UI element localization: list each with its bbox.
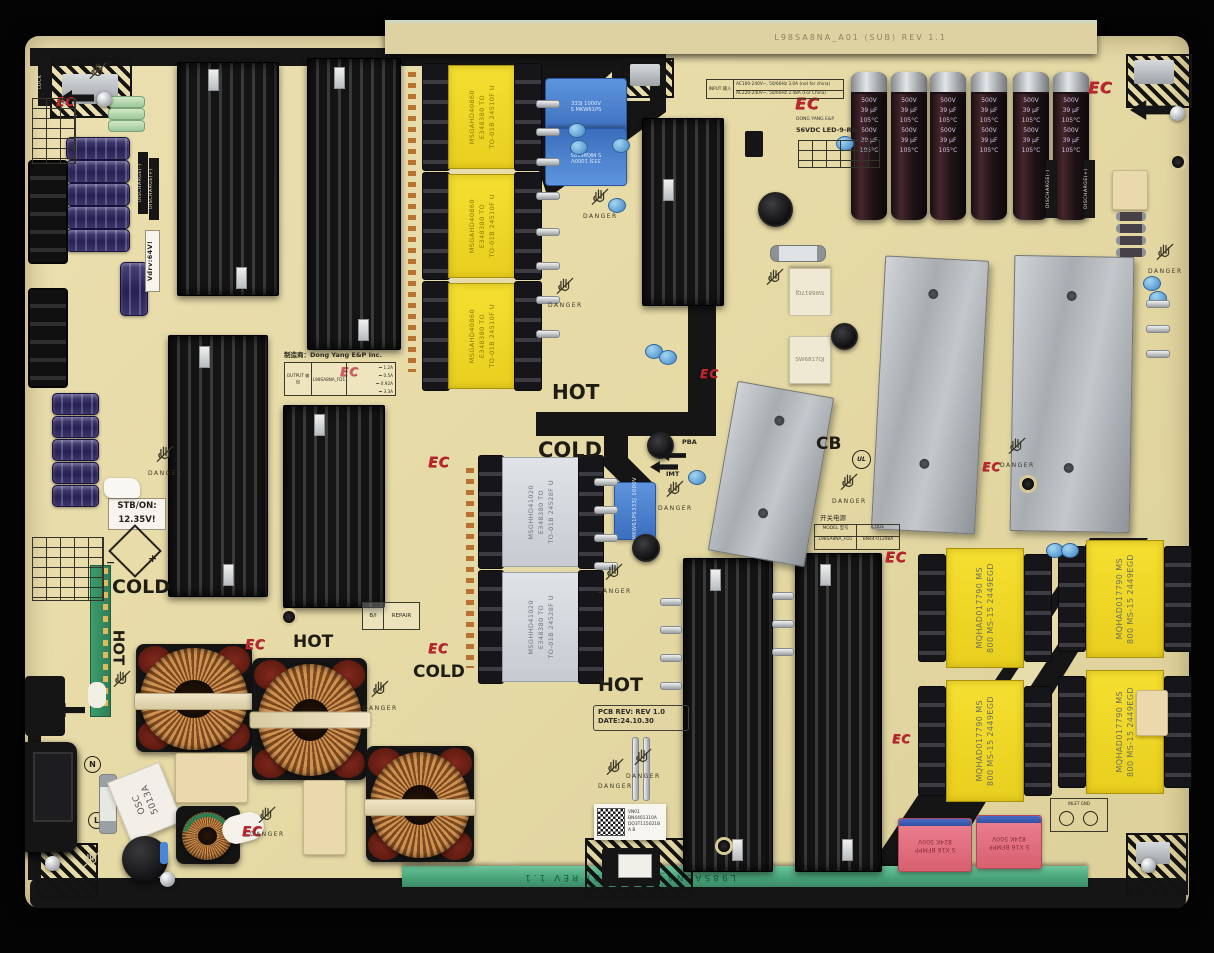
transformer-yellow: MSGAHD40860E348380 TOTO-01B 24510F U	[422, 172, 540, 278]
transformer-bobbin	[514, 63, 542, 171]
jumper-wire	[594, 506, 618, 514]
mounting-hole	[1022, 478, 1034, 490]
transformer-clamp	[1024, 554, 1052, 662]
discharge-label: DISCHARGE(+)	[149, 158, 159, 220]
input-lines-cell: AC100-240V~, 50/60Hz 3.0A (not for china…	[734, 80, 843, 98]
zone-label-hot: HOT	[552, 382, 599, 402]
film-capacitor-red: 824K 500VS X16 BFMPP	[898, 818, 972, 872]
danger-hand: DANGER	[1000, 435, 1035, 469]
transformer-bobbin	[478, 570, 504, 684]
heatsink-clip	[199, 346, 210, 368]
screw	[1170, 106, 1185, 121]
sw-module: SW6817QJ	[789, 336, 831, 384]
sw-module: SW6817QJ	[789, 268, 831, 316]
ec-logo: EC	[700, 368, 719, 380]
ec-logo: EC	[428, 643, 448, 656]
cb-mark: CB	[816, 436, 841, 453]
capacitor-navy	[66, 229, 130, 252]
heatsink-clip	[820, 564, 831, 586]
jumper-wire	[772, 592, 794, 600]
danger-hand: DANGER	[548, 275, 583, 309]
hand-icon	[112, 668, 132, 694]
capacitor-navy	[66, 183, 130, 206]
jumper-wire	[1146, 300, 1170, 308]
pba-label: PBA	[682, 438, 697, 446]
zone-label-hot: HOT	[293, 634, 333, 651]
to220-transistor	[745, 131, 763, 157]
resistor-green	[108, 96, 145, 108]
transformer-clamp	[1024, 686, 1052, 796]
heatsink-clip	[236, 267, 247, 289]
danger-hand	[112, 668, 132, 694]
film-capacitor-blue: 333J 1000VS MKW61PS	[614, 482, 656, 540]
capacitor-round	[632, 534, 660, 562]
toroid-saddle	[364, 799, 476, 816]
heatsink-clip	[334, 67, 345, 89]
type-cn-label: 开关电源	[820, 512, 846, 522]
hand-icon	[1155, 241, 1175, 267]
polarity-plus: +	[148, 552, 157, 565]
model-val: L98SA8NA_FD1	[815, 537, 857, 549]
disc-capacitor	[1143, 276, 1161, 291]
top-subboard-edge: L98SA8NA_A01 (SUB) REV 1.1	[385, 20, 1097, 54]
output-spec-table: OUTPUT 输出 L98SA8NA_FD1 ⎓ 1.2A⎓ 0.5A ⎓ 0.…	[284, 362, 396, 396]
transformer-pins	[466, 468, 474, 668]
glue-blob	[88, 682, 106, 708]
output-lines-cell: ⎓ 1.2A⎓ 0.5A ⎓ 0.92A⎓ 3.3A	[347, 363, 395, 395]
arrow-left-icon	[1130, 100, 1176, 120]
capacitor-navy	[120, 262, 148, 316]
diode	[1116, 224, 1146, 233]
repair-table: B/I REPAIR	[362, 602, 420, 630]
jumper-wire	[1146, 350, 1170, 358]
toroid-inductor	[140, 648, 248, 750]
jumper-wire	[536, 192, 560, 200]
model-key: MODEL 型号	[815, 525, 857, 537]
screw	[160, 872, 175, 887]
thermistor-lead	[160, 842, 168, 864]
heatsink-clip	[223, 564, 234, 586]
hand-icon	[765, 266, 785, 292]
discharge-label: DISCHARGE(-)	[1046, 160, 1057, 218]
toroid-inductor	[370, 752, 470, 858]
transformer-label: MSGHHD41020E348380 TOTO-01B 24528F U	[502, 457, 580, 567]
capacitor-500v: 500V39 μF105°C500V39 μF105°C	[891, 72, 927, 220]
zone-label-cold: COLD	[538, 440, 602, 461]
capacitor-round	[831, 323, 858, 350]
danger-hand: DANGER	[363, 678, 398, 712]
gnd-symbol	[1059, 811, 1074, 826]
vdrv-label: Vdrv:64V!	[145, 230, 160, 292]
jumper-wire	[536, 158, 560, 166]
transformer-label: MSGAHD40860E348380 TOTO-01B 24510F U	[448, 174, 516, 278]
pcb-rev-box: PCB REV: REV 1.0DATE:24.10.30	[593, 705, 689, 731]
transformer-label: MSGHHD41020E348380 TOTO-01B 24528F U	[502, 572, 580, 682]
heatsink-clip	[208, 69, 219, 91]
ul-mark: UL	[852, 450, 871, 469]
transformer-corner: MQHAD017790 MS800 MS-15 2449EGD	[1058, 540, 1190, 656]
transformer-gray: MSGHHD41020E348380 TOTO-01B 24528F U	[478, 455, 602, 567]
disc-capacitor	[612, 138, 630, 153]
hand-icon	[604, 561, 624, 587]
wire-connector	[28, 160, 68, 264]
transformer-corner: MQHAD017790 MS800 MS-15 2449EGD	[918, 548, 1050, 666]
transformer-clamp	[1164, 546, 1192, 652]
toroid-saddle	[250, 712, 372, 729]
jumper-wire	[660, 598, 682, 606]
hand-icon	[605, 756, 625, 782]
capacitor-top	[1013, 72, 1049, 94]
ec-logo: EC	[892, 733, 911, 745]
ec-logo: EC	[885, 551, 907, 565]
diode	[1116, 212, 1146, 221]
diode	[1116, 236, 1146, 245]
jumper-wire	[536, 262, 560, 270]
gnd-symbol	[1083, 811, 1098, 826]
qr-code	[597, 808, 625, 836]
imt-label: IMT	[666, 470, 679, 478]
inlet-n-label: N	[84, 756, 101, 773]
capacitor-navy	[66, 206, 130, 229]
jumper-wire	[772, 620, 794, 628]
jumper-wire	[594, 534, 618, 542]
capacitor-round	[758, 192, 793, 227]
capacitor-500v: 500V39 μF105°C500V39 μF105°C	[930, 72, 966, 220]
code-key: CODE	[857, 525, 899, 537]
maker-label: 制造商：Dong Yang E&P Inc.	[284, 349, 382, 359]
heatsink-black	[283, 405, 385, 608]
capacitor-top	[971, 72, 1007, 94]
hand-icon	[82, 848, 102, 874]
qr-sticker: VN01 BN4401310A DQ3T115021B A B	[594, 804, 666, 840]
discharge-label: DISCHARGE(+)	[1084, 160, 1095, 218]
screw	[1141, 858, 1156, 873]
heatsink-silver	[871, 255, 989, 534]
jumper-wire	[660, 626, 682, 634]
ac-inlet-socket	[33, 752, 73, 822]
transformer-corner: MQHAD017790 MS800 MS-15 2449EGD	[1058, 670, 1190, 792]
fusible-resistor	[770, 245, 826, 262]
silk-grid-table	[32, 98, 76, 164]
jumper-wire	[536, 128, 560, 136]
output-model-cell: L98SA8NA_FD1	[312, 363, 347, 395]
hand-icon	[665, 478, 685, 504]
model-code-plate: MODEL 型号 CODE L98SA8NA_FD1 BN44-01208A	[814, 524, 900, 550]
jumper-wire	[772, 648, 794, 656]
jumper-wire	[536, 100, 560, 108]
jumper-wire	[536, 228, 560, 236]
mounting-hole	[718, 840, 730, 852]
polarity-minus: −	[106, 556, 115, 569]
input-spec-table: INPUT 输入 AC100-240V~, 50/60Hz 3.0A (not …	[706, 79, 844, 99]
jumper-wire	[660, 654, 682, 662]
heatsink-clip	[710, 569, 721, 591]
disc-capacitor	[568, 123, 586, 138]
heatsink-black	[683, 558, 773, 872]
wire-connector	[28, 288, 68, 388]
heatsink-clip	[314, 414, 325, 436]
danger-hand: DANGER	[148, 443, 183, 477]
transformer-clamp	[1058, 546, 1086, 652]
transformer-bobbin	[478, 455, 504, 569]
ec-logo: EC	[245, 639, 265, 652]
service-switch-topright	[1134, 60, 1174, 84]
screw	[45, 856, 60, 871]
screw	[97, 92, 112, 107]
heatsink-clip	[732, 839, 743, 861]
pba-arrow	[660, 446, 686, 457]
disc-capacitor	[659, 350, 677, 365]
film-capacitor-beige	[1112, 170, 1148, 210]
hand-icon	[590, 186, 610, 212]
transformer-label: MQHAD017790 MS800 MS-15 2449EGD	[1086, 540, 1164, 658]
disc-capacitor	[570, 140, 588, 155]
connector-bottomcenter-insert	[618, 854, 652, 878]
transformer-bobbin	[422, 172, 450, 280]
zone-label-hot: HOT	[598, 676, 643, 695]
capacitor-navy	[52, 462, 99, 484]
service-switch-top	[630, 64, 660, 86]
film-capacitor-beige	[1136, 690, 1168, 736]
zone-label-cold: COLD	[413, 664, 465, 681]
heatsink-clip	[663, 179, 674, 201]
pcb-photo: L98SA8NA_A01 (SUB) REV 1.1 L98SA8NA_A01 …	[0, 0, 1214, 953]
danger-hand: DANGER	[598, 756, 633, 790]
ec-logo: EC	[982, 461, 1001, 473]
capacitor-navy	[52, 416, 99, 438]
hand-icon	[555, 275, 575, 301]
jumper-wire	[1146, 325, 1170, 333]
ec-logo: EC	[1088, 80, 1113, 96]
brand-logo-text: DONG YANG E&P	[796, 117, 834, 122]
mounting-hole	[1172, 156, 1184, 168]
heatsink-silver	[1010, 255, 1135, 533]
danger-hand	[765, 266, 785, 292]
sticker-torn	[104, 478, 140, 498]
resistor-green	[108, 120, 145, 132]
transformer-pins	[408, 72, 416, 372]
toroid-saddle	[134, 693, 254, 710]
heatsink-black	[795, 553, 882, 872]
transformer-clamp	[918, 686, 946, 796]
danger-hand	[88, 60, 108, 86]
wire-clamp	[25, 676, 65, 736]
hand-icon	[257, 804, 277, 830]
film-capacitor-beige	[175, 753, 248, 803]
transformer-label: MQHAD017790 MS800 MS-15 2449EGD	[946, 680, 1024, 802]
capacitor-top	[930, 72, 966, 94]
capacitor-500v: 500V39 μF105°C500V39 μF105°C	[1013, 72, 1049, 220]
silk-grid-table	[798, 140, 880, 168]
jumper-wire	[536, 330, 560, 338]
heatsink-black	[168, 335, 268, 597]
transformer-label: MSGAHD40860E348380 TOTO-01B 24510F U	[448, 283, 516, 389]
heatsink-clip	[842, 839, 853, 861]
zone-label-cold: COLD	[112, 578, 170, 597]
jumper-wire	[594, 478, 618, 486]
transformer-clamp	[1164, 676, 1192, 788]
film-capacitor-red: 824K 500VS X16 BFMPP	[976, 815, 1042, 869]
capacitor-top	[851, 72, 887, 94]
transformer-bobbin	[422, 281, 450, 391]
film-capacitor-beige	[303, 780, 346, 855]
subboard-edge-text: L98SA8NA_A01 (SUB) REV 1.1	[774, 33, 947, 42]
danger-hand: DANGER	[250, 804, 285, 838]
transformer-clamp	[1058, 676, 1086, 788]
capacitor-navy	[52, 393, 99, 415]
heatsink-black	[307, 58, 401, 350]
danger-hand: DANGER	[583, 186, 618, 220]
mounting-hole	[283, 611, 295, 623]
imt-arrow	[650, 458, 678, 470]
transformer-yellow: MSGAHD40860E348380 TOTO-01B 24510F U	[422, 63, 540, 169]
output-title-cell: OUTPUT 输出	[285, 363, 312, 395]
hand-icon	[88, 60, 108, 86]
danger-hand: DANGER	[1148, 241, 1183, 275]
inlet-gnd-symbols: INLET GND	[1050, 798, 1108, 832]
film-capacitor-blue: 333J 1000VS MKW61PS	[545, 128, 627, 186]
hand-icon	[633, 746, 653, 772]
discharge-label: DISCHARGE(-)	[138, 152, 148, 214]
heatsink-black	[177, 62, 279, 296]
toroid-inductor	[258, 664, 362, 776]
transformer-label: MQHAD017790 MS800 MS-15 2449EGD	[946, 548, 1024, 668]
transformer-bobbin	[422, 63, 450, 171]
jumper-wire	[660, 682, 682, 690]
danger-hand: DANGER	[597, 561, 632, 595]
diode	[1116, 248, 1146, 257]
hand-icon	[370, 678, 390, 704]
disc-capacitor	[1061, 543, 1079, 558]
capacitor-top	[1053, 72, 1089, 94]
input-title-cell: INPUT 输入	[707, 80, 734, 98]
spec-code-text: 56VDC LED-9-RAA	[796, 126, 862, 134]
hand-icon	[839, 471, 859, 497]
transformer-yellow: MSGAHD40860E348380 TOTO-01B 24510F U	[422, 281, 540, 389]
capacitor-top	[891, 72, 927, 94]
danger-hand: DANGER	[832, 471, 867, 505]
capacitor-500v: 500V39 μF105°C500V39 μF105°C	[971, 72, 1007, 220]
code-val: BN44-01208A	[857, 537, 899, 549]
capacitor-navy	[52, 439, 99, 461]
transformer-corner: MQHAD017790 MS800 MS-15 2449EGD	[918, 680, 1050, 800]
resistor-green	[108, 108, 145, 120]
capacitor-navy	[52, 485, 99, 507]
hand-icon	[155, 443, 175, 469]
transformer-label: MSGAHD40860E348380 TOTO-01B 24510F U	[448, 65, 516, 169]
heatsink-clip	[358, 319, 369, 341]
silk-grid-table	[32, 537, 104, 601]
sticker-text: VN01 BN4401310A DQ3T115021B A B	[628, 810, 660, 834]
heatsink-black	[642, 118, 724, 306]
hand-icon	[1007, 435, 1027, 461]
danger-hand: DANGER	[658, 478, 693, 512]
ec-logo: EC	[428, 456, 450, 470]
zone-label-hot-vertical: HOT	[110, 630, 125, 666]
transformer-clamp	[918, 554, 946, 662]
transformer-gray: MSGHHD41020E348380 TOTO-01B 24528F U	[478, 570, 602, 682]
danger-hand	[82, 848, 102, 874]
